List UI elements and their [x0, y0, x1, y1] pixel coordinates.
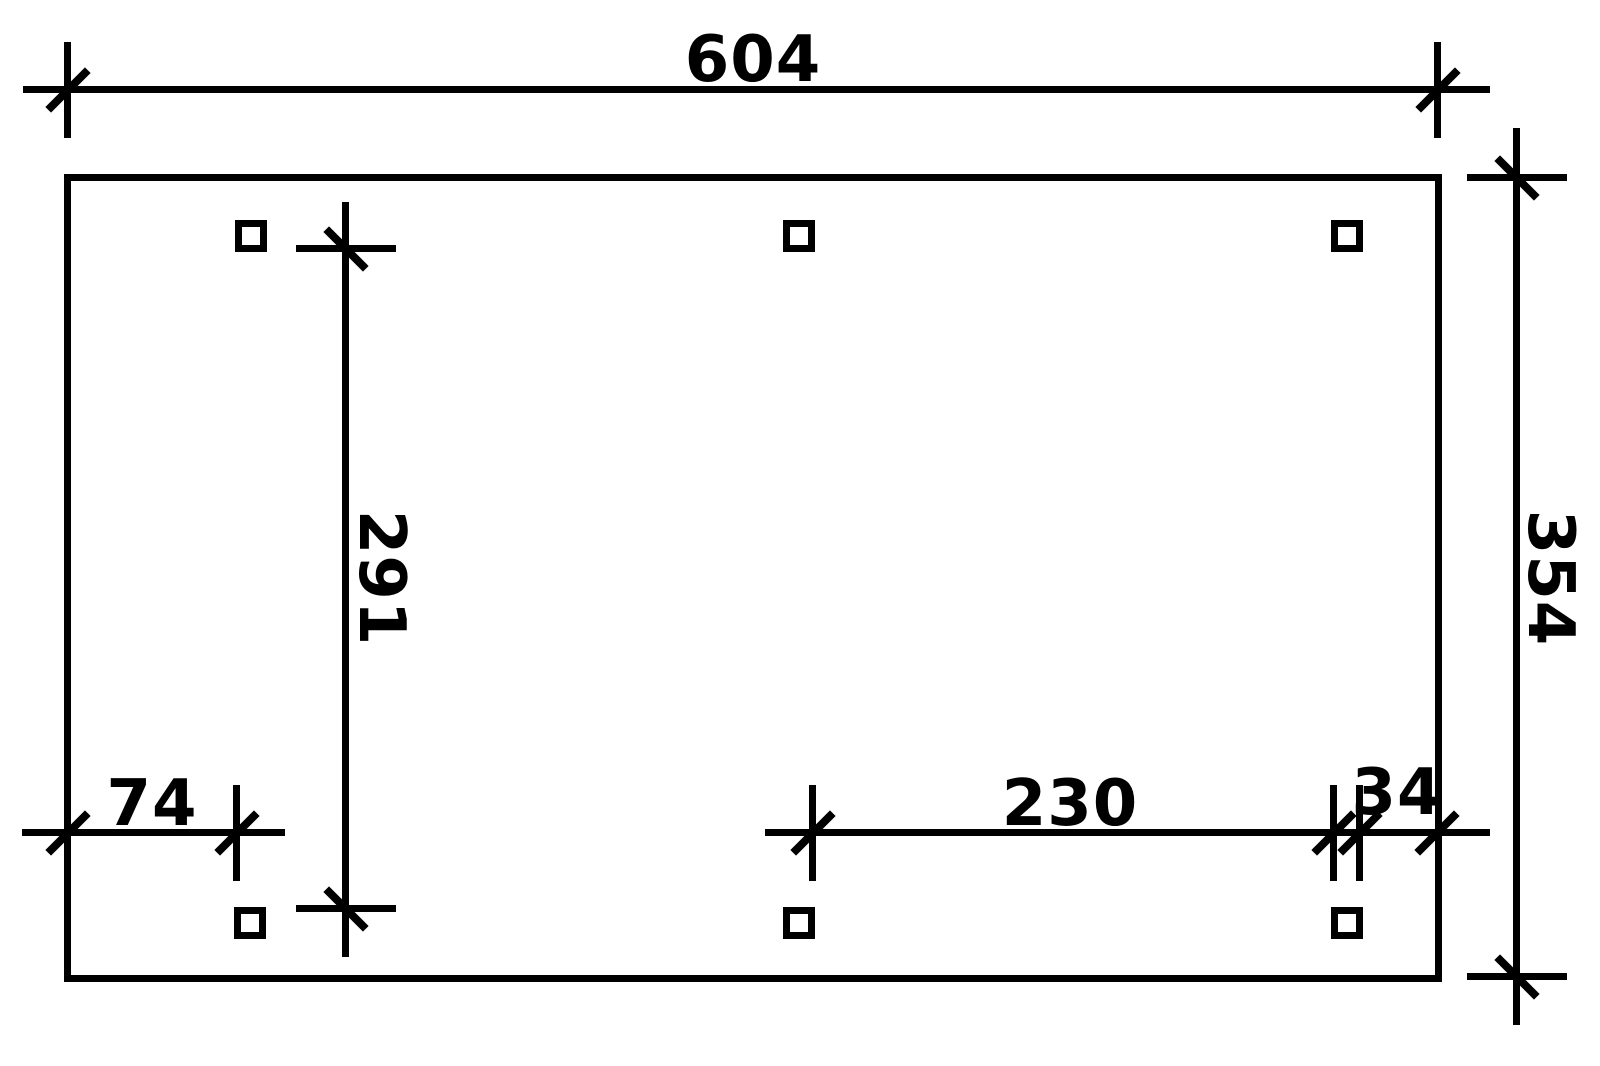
post-marker-top-right	[1331, 220, 1363, 252]
dim-label-clear-depth: 291	[353, 508, 409, 648]
dim-label-total-width: 604	[653, 32, 853, 88]
post-marker-bottom-middle	[783, 907, 815, 939]
dim-label-post-spacing: 230	[970, 776, 1170, 832]
dim-label-left-offset: 74	[72, 776, 232, 832]
dim-label-total-depth: 354	[1522, 508, 1578, 648]
drawing-canvas: 604 354 291 74 230 34	[0, 0, 1600, 1066]
dim-label-right-offset: 34	[1337, 765, 1457, 821]
post-marker-bottom-right	[1331, 907, 1363, 939]
post-marker-bottom-left	[234, 907, 266, 939]
post-marker-top-middle	[783, 220, 815, 252]
post-marker-top-left	[235, 220, 267, 252]
carport-outline	[64, 174, 1442, 982]
